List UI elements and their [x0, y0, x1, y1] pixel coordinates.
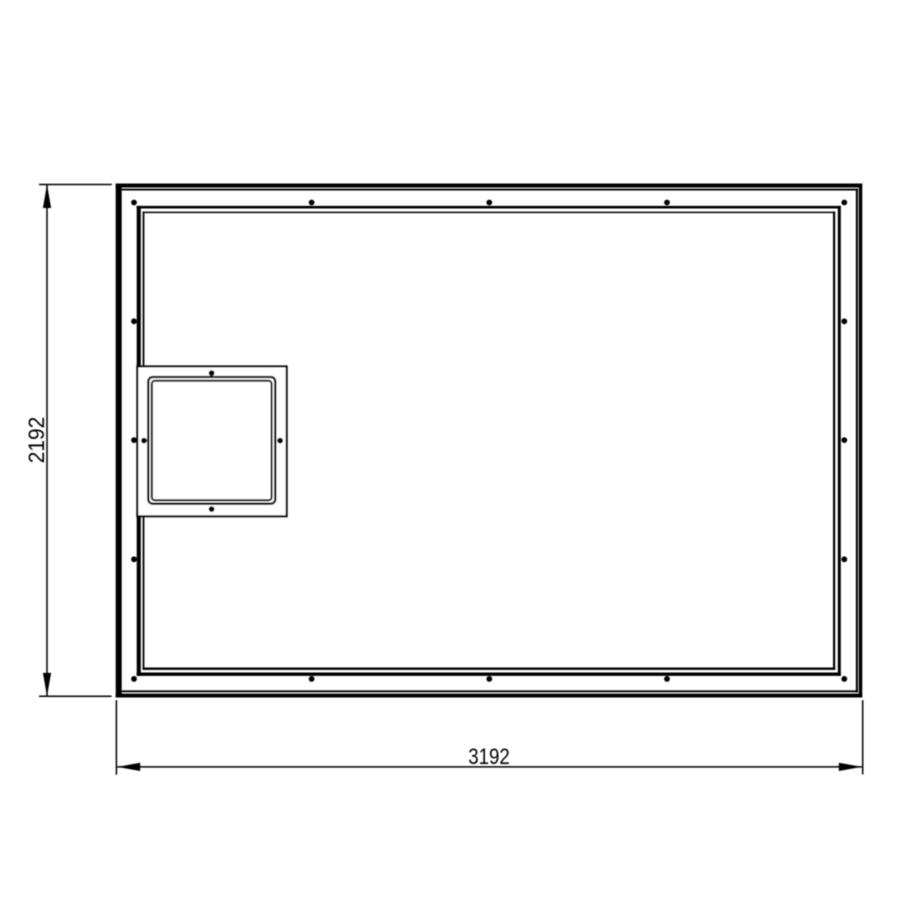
- svg-text:3192: 3192: [468, 744, 510, 769]
- svg-text:2192: 2192: [24, 417, 49, 464]
